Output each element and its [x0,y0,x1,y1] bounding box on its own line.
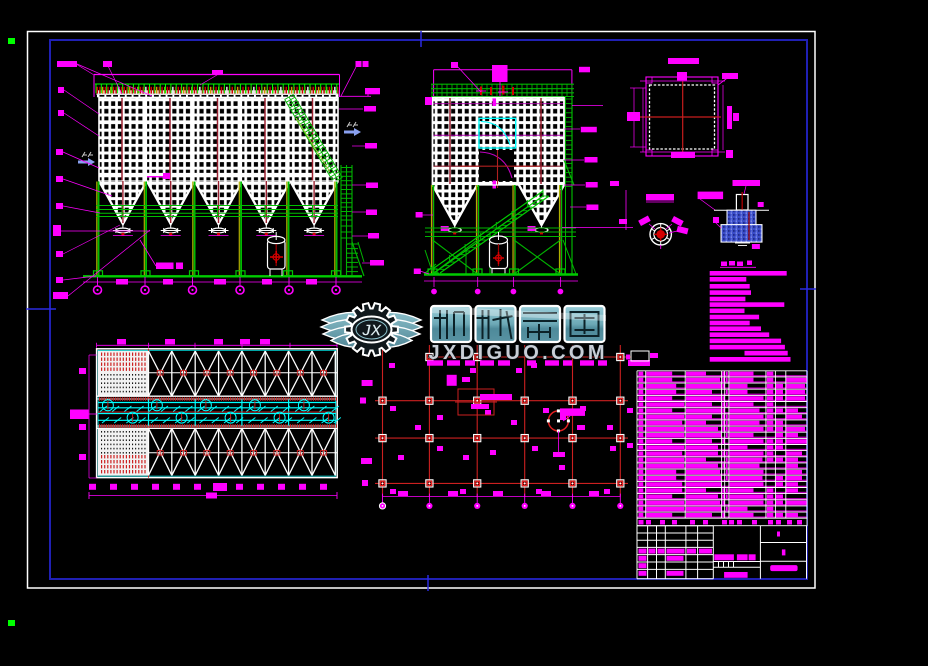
svg-text:JX: JX [362,323,383,340]
svg-text:JXDIGUO.COM: JXDIGUO.COM [429,342,606,364]
